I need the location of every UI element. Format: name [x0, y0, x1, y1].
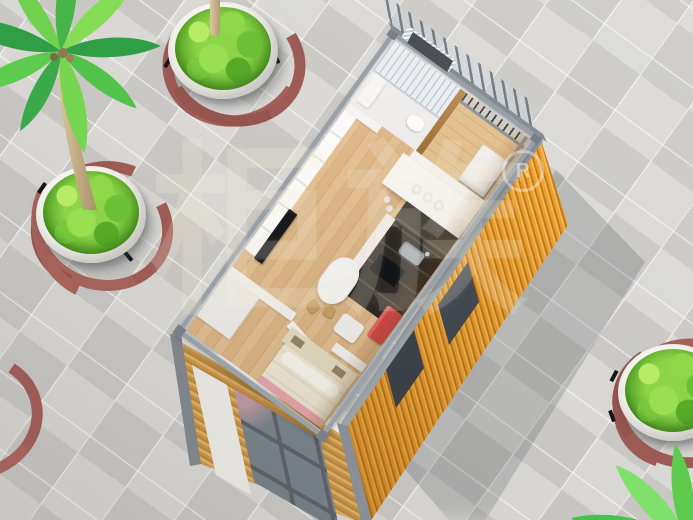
brand-watermark: 柜族	[150, 118, 536, 349]
palm-canopy	[566, 442, 693, 520]
registered-trademark-icon: R	[502, 150, 544, 192]
palm-canopy	[0, 0, 161, 156]
palm-fronds-corner	[503, 380, 693, 520]
render-scene: 柜族 R	[0, 0, 693, 520]
planter-edge-sliver	[0, 348, 25, 463]
